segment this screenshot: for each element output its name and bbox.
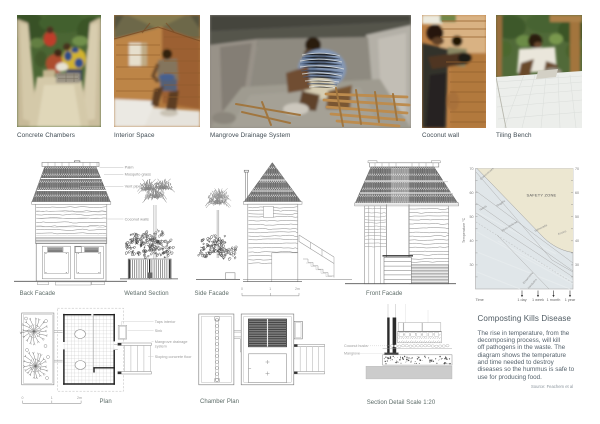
svg-text:Vent pipe: Vent pipe bbox=[125, 184, 141, 189]
svg-text:2m: 2m bbox=[295, 287, 300, 291]
svg-text:1: 1 bbox=[269, 287, 271, 291]
svg-text:0: 0 bbox=[241, 287, 243, 291]
svg-text:30: 30 bbox=[575, 263, 579, 267]
svg-text:Mangrove: Mangrove bbox=[344, 352, 360, 356]
svg-text:Sink: Sink bbox=[155, 329, 162, 333]
svg-text:Palm: Palm bbox=[125, 165, 134, 170]
svg-text:40: 40 bbox=[470, 239, 474, 243]
svg-text:1 month: 1 month bbox=[547, 298, 561, 302]
svg-text:1 week: 1 week bbox=[532, 298, 544, 302]
svg-text:70: 70 bbox=[575, 167, 579, 171]
svg-text:Mangrove drainage: Mangrove drainage bbox=[155, 340, 188, 344]
svg-text:70: 70 bbox=[470, 167, 474, 171]
svg-text:Sloping concrete floor: Sloping concrete floor bbox=[155, 355, 192, 359]
svg-text:1 day: 1 day bbox=[517, 298, 526, 302]
svg-text:1 year: 1 year bbox=[565, 298, 576, 302]
svg-text:0: 0 bbox=[22, 396, 24, 400]
svg-text:Coconut walls: Coconut walls bbox=[125, 216, 149, 221]
svg-text:40: 40 bbox=[575, 239, 579, 243]
svg-text:1: 1 bbox=[51, 396, 53, 400]
svg-text:Temperature °C: Temperature °C bbox=[462, 217, 466, 243]
svg-text:60: 60 bbox=[575, 191, 579, 195]
svg-text:Coconut husks: Coconut husks bbox=[344, 344, 368, 348]
svg-text:SAFETY ZONE: SAFETY ZONE bbox=[527, 192, 557, 197]
svg-text:Mosquito grass: Mosquito grass bbox=[125, 172, 151, 177]
svg-text:50: 50 bbox=[575, 215, 579, 219]
svg-text:50: 50 bbox=[470, 215, 474, 219]
svg-text:30: 30 bbox=[470, 263, 474, 267]
svg-text:Time: Time bbox=[476, 298, 484, 302]
svg-text:Taps interior: Taps interior bbox=[155, 320, 176, 324]
svg-text:60: 60 bbox=[470, 191, 474, 195]
svg-text:2m: 2m bbox=[77, 396, 82, 400]
svg-text:system: system bbox=[155, 344, 167, 348]
